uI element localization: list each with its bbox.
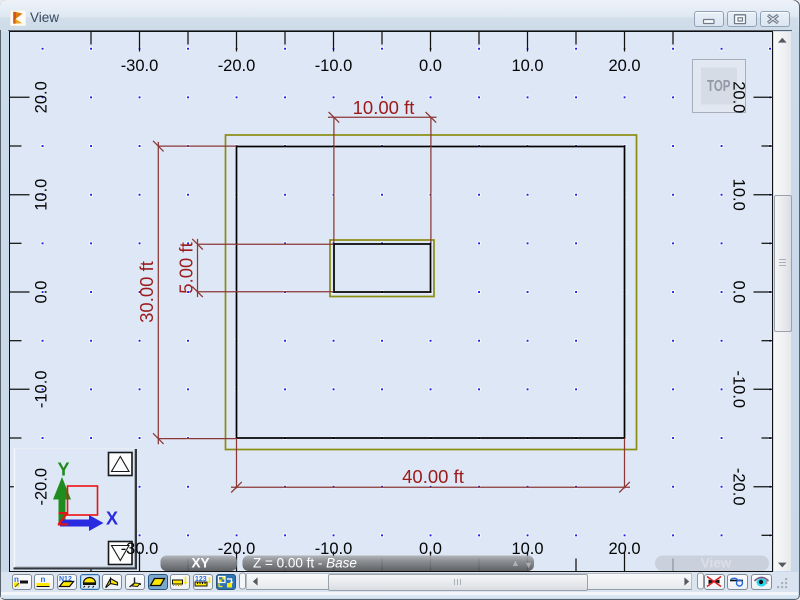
svg-text:10.00 ft: 10.00 ft	[353, 97, 415, 118]
svg-text:10.0: 10.0	[32, 179, 50, 211]
svg-text:X: X	[106, 509, 118, 529]
svg-text:TOP: TOP	[707, 78, 731, 95]
svg-text:n: n	[41, 575, 46, 584]
svg-text:20.0: 20.0	[608, 540, 640, 558]
svg-text:0.0: 0.0	[32, 281, 50, 304]
svg-text:XY: XY	[191, 556, 209, 571]
svg-text:-10.0: -10.0	[32, 370, 50, 408]
svg-text:-20.0: -20.0	[218, 540, 256, 558]
svg-text:-20.0: -20.0	[32, 468, 50, 506]
svg-text:-10.0: -10.0	[730, 370, 748, 408]
svg-text:10.0: 10.0	[511, 57, 543, 75]
svg-text:▲: ▲	[511, 558, 520, 568]
svg-text:0.0: 0.0	[730, 281, 748, 304]
svg-text:5.00 ft: 5.00 ft	[176, 242, 197, 293]
svg-text:-30.0: -30.0	[121, 540, 159, 558]
svg-text:-20.0: -20.0	[218, 57, 256, 75]
svg-text:0.0: 0.0	[419, 540, 442, 558]
svg-text:10.0: 10.0	[511, 540, 543, 558]
svg-text:10.0: 10.0	[730, 179, 748, 211]
svg-text:20.0: 20.0	[608, 57, 640, 75]
svg-text:-10.0: -10.0	[315, 57, 353, 75]
svg-text:-30.0: -30.0	[121, 57, 159, 75]
svg-text:20.0: 20.0	[730, 81, 748, 113]
svg-text:View: View	[701, 556, 732, 571]
svg-text:30.00 ft: 30.00 ft	[136, 261, 157, 323]
svg-text:0.0: 0.0	[419, 57, 442, 75]
svg-text:20.0: 20.0	[32, 81, 50, 113]
svg-text:Z = 0.00 ft - Base: Z = 0.00 ft - Base	[253, 556, 357, 571]
svg-text:Y: Y	[57, 460, 69, 480]
svg-text:-20.0: -20.0	[730, 468, 748, 506]
svg-text:▼: ▼	[524, 560, 533, 570]
svg-text:40.00 ft: 40.00 ft	[402, 466, 464, 487]
